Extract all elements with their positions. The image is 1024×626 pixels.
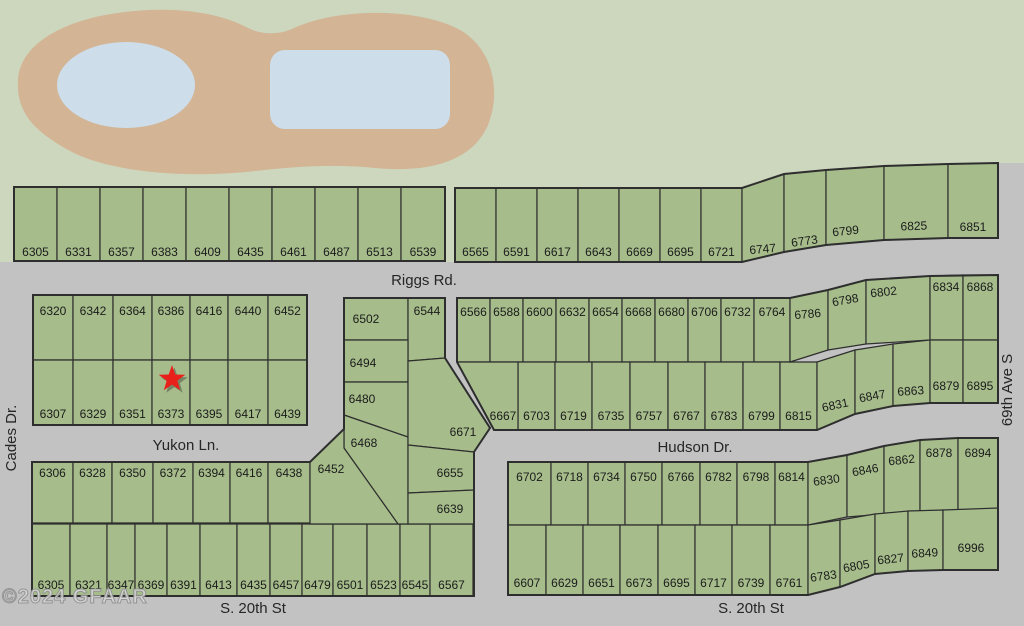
lot-6545-label: 6545 [402, 578, 429, 592]
lot-6895 [963, 340, 998, 403]
lot-6372-label: 6372 [160, 466, 187, 480]
lot-6452-label: 6452 [318, 462, 345, 476]
lot-6703-label: 6703 [523, 409, 550, 423]
lot-6834-label: 6834 [933, 280, 960, 294]
lot-6544-label: 6544 [414, 304, 441, 318]
lot-6706-label: 6706 [691, 305, 718, 319]
lot-6435-label: 6435 [237, 245, 264, 259]
lot-6523-label: 6523 [370, 578, 397, 592]
lot-6468-label: 6468 [351, 436, 378, 450]
lot-6849-label: 6849 [911, 545, 939, 560]
lot-6721-label: 6721 [708, 245, 735, 259]
pond-ellipse [57, 42, 195, 128]
plat-map: 6305633163576383640964356461648765136539… [0, 0, 1024, 626]
lot-6566-label: 6566 [460, 305, 487, 319]
lot-6783-label: 6783 [711, 409, 738, 423]
lot-6417-label: 6417 [235, 407, 262, 421]
street-label-yukon-ln: Yukon Ln. [153, 437, 220, 454]
lot-6305-label: 6305 [22, 245, 49, 259]
lot-6667-label: 6667 [490, 409, 517, 423]
lot-6342-label: 6342 [80, 304, 107, 318]
lot-6879 [930, 340, 963, 403]
lot-6895-label: 6895 [967, 379, 994, 393]
lot-6668-label: 6668 [625, 305, 652, 319]
lot-6734-label: 6734 [593, 470, 620, 484]
lot-6457-label: 6457 [273, 578, 300, 592]
lot-6739-label: 6739 [738, 576, 765, 590]
lot-6673-label: 6673 [626, 576, 653, 590]
lot-6373-label: 6373 [158, 407, 185, 421]
lot-6438-label: 6438 [276, 466, 303, 480]
street-label-hudson-dr: Hudson Dr. [657, 439, 732, 456]
street-label-s-20th-st-w: S. 20th St [220, 600, 287, 617]
lot-6878-label: 6878 [926, 446, 953, 460]
lot-6391-label: 6391 [170, 578, 197, 592]
street-label-s-20th-st-e: S. 20th St [718, 600, 785, 617]
lot-6386-label: 6386 [158, 304, 185, 318]
street-label-cades-dr: Cades Dr. [3, 405, 20, 472]
street-label-69th-ave-s: 69th Ave S [999, 354, 1016, 426]
lot-6802-label: 6802 [870, 284, 898, 301]
lot-6695-label: 6695 [663, 576, 690, 590]
plat-map-canvas: 6305633163576383640964356461648765136539… [0, 0, 1024, 626]
lot-6413-label: 6413 [205, 578, 232, 592]
lot-6695-label: 6695 [667, 245, 694, 259]
lot-6786-label: 6786 [794, 306, 822, 322]
lot-6680-label: 6680 [658, 305, 685, 319]
lot-6435-label: 6435 [240, 578, 267, 592]
lot-6798-label: 6798 [743, 470, 770, 484]
lot-6750-label: 6750 [630, 470, 657, 484]
lot-6350-label: 6350 [119, 466, 146, 480]
lot-6607-label: 6607 [514, 576, 541, 590]
lot-6513-label: 6513 [366, 245, 393, 259]
lot-6539-label: 6539 [410, 245, 437, 259]
lot-6798 [828, 280, 866, 350]
lot-6331-label: 6331 [65, 245, 92, 259]
lot-6502-label: 6502 [353, 312, 380, 326]
lot-6416-label: 6416 [236, 466, 263, 480]
lot-6600-label: 6600 [526, 305, 553, 319]
lot-6814-label: 6814 [778, 470, 805, 484]
lot-6565-label: 6565 [462, 245, 489, 259]
lot-6639-label: 6639 [437, 502, 464, 516]
lot-6479-label: 6479 [304, 578, 331, 592]
lot-6815-label: 6815 [785, 409, 812, 423]
lot-6879-label: 6879 [933, 379, 960, 393]
lot-6827-label: 6827 [877, 551, 905, 568]
lot-6320-label: 6320 [40, 304, 67, 318]
lot-6702-label: 6702 [516, 470, 543, 484]
lot-6767-label: 6767 [673, 409, 700, 423]
lot-6862-label: 6862 [888, 452, 916, 469]
lot-6395-label: 6395 [196, 407, 223, 421]
lot-6868-label: 6868 [967, 280, 994, 294]
lot-6799-label: 6799 [832, 223, 860, 240]
lot-6786 [790, 290, 828, 362]
lot-6782-label: 6782 [705, 470, 732, 484]
lot-6501-label: 6501 [337, 578, 364, 592]
lot-6862 [884, 440, 920, 514]
lot-6351-label: 6351 [119, 407, 146, 421]
lot-6996 [943, 508, 998, 570]
lot-6461-label: 6461 [280, 245, 307, 259]
lot-6409-label: 6409 [194, 245, 221, 259]
lot-6757-label: 6757 [636, 409, 663, 423]
lot-6567-label: 6567 [438, 578, 465, 592]
lot-6494-label: 6494 [350, 356, 377, 370]
lot-6329-label: 6329 [80, 407, 107, 421]
lot-6863-label: 6863 [897, 383, 925, 399]
lot-6799-label: 6799 [748, 409, 775, 423]
lot-6851-label: 6851 [960, 220, 987, 234]
lot-6732-label: 6732 [724, 305, 751, 319]
lot-6643-label: 6643 [585, 245, 612, 259]
lot-6849 [908, 510, 943, 571]
lot-6654-label: 6654 [592, 305, 619, 319]
lot-6996-label: 6996 [958, 541, 985, 555]
lot-6825-label: 6825 [900, 219, 927, 234]
lot-6357-label: 6357 [108, 245, 135, 259]
lot-6588-label: 6588 [493, 305, 520, 319]
lot-6671-label: 6671 [450, 425, 477, 439]
lot-6306-label: 6306 [39, 466, 66, 480]
lot-6766-label: 6766 [668, 470, 695, 484]
lot-6717-label: 6717 [700, 576, 727, 590]
lot-6452-label: 6452 [274, 304, 301, 318]
lot-6651-label: 6651 [588, 576, 615, 590]
lot-6416-label: 6416 [196, 304, 223, 318]
lot-6617-label: 6617 [544, 245, 571, 259]
lot-6846 [847, 446, 884, 517]
lot-6394-label: 6394 [198, 466, 225, 480]
lot-6735-label: 6735 [598, 409, 625, 423]
gfaar-watermark: ©2024 GFAAR [2, 586, 148, 609]
lot-6764-label: 6764 [759, 305, 786, 319]
lot-6364-label: 6364 [119, 304, 146, 318]
lot-6830 [808, 455, 847, 525]
lot-6655-label: 6655 [437, 466, 464, 480]
lot-6487-label: 6487 [323, 245, 350, 259]
lot-6480-label: 6480 [349, 392, 376, 406]
street-label-riggs-rd: Riggs Rd. [391, 272, 457, 289]
lot-6383-label: 6383 [151, 245, 178, 259]
lot-6894-label: 6894 [965, 446, 992, 460]
lot-6719-label: 6719 [560, 409, 587, 423]
lot-6328-label: 6328 [79, 466, 106, 480]
lot-6591-label: 6591 [503, 245, 530, 259]
lot-6632-label: 6632 [559, 305, 586, 319]
lot-6669-label: 6669 [626, 245, 653, 259]
pond-rect [270, 50, 450, 129]
lot-6439-label: 6439 [274, 407, 301, 421]
lot-6718-label: 6718 [556, 470, 583, 484]
lot-6307-label: 6307 [40, 407, 67, 421]
lot-6761-label: 6761 [776, 576, 803, 590]
lot-6440-label: 6440 [235, 304, 262, 318]
lot-6629-label: 6629 [551, 576, 578, 590]
